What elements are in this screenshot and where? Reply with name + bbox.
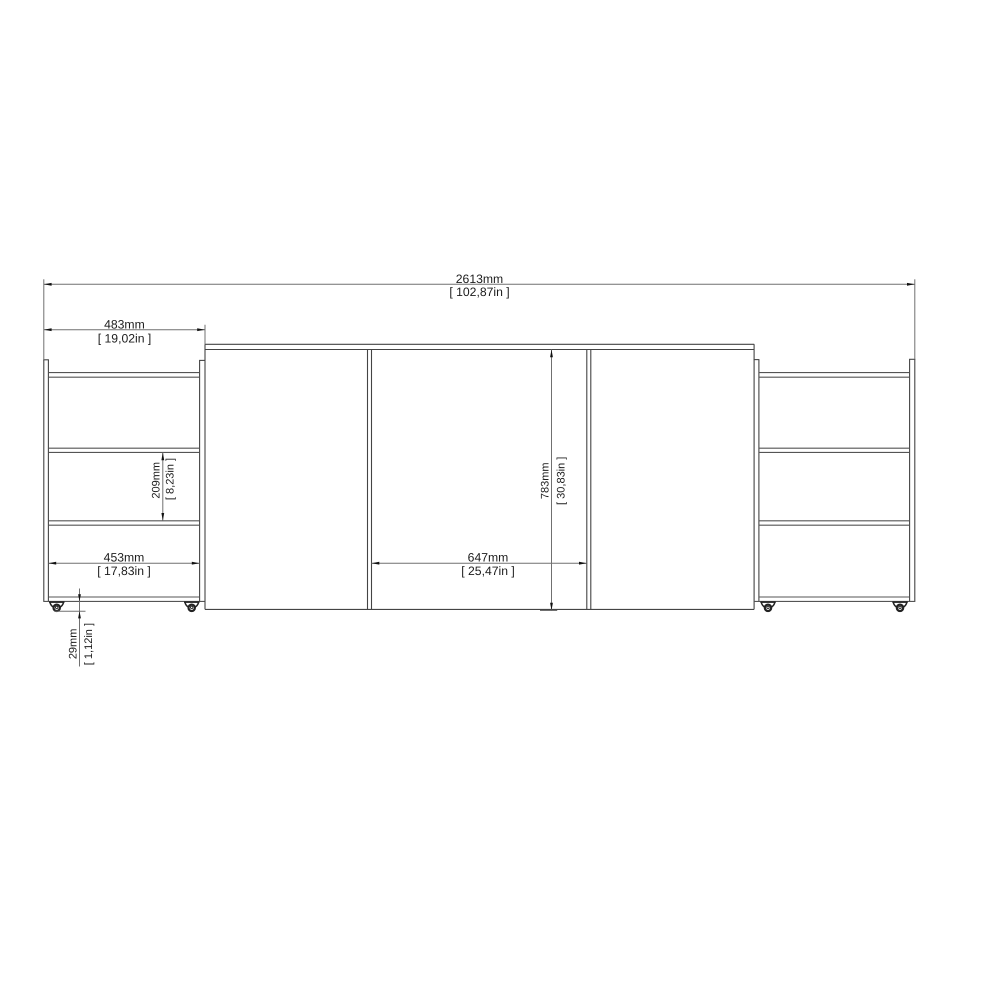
svg-text:[ 8,23in ]: [ 8,23in ] xyxy=(165,458,177,500)
svg-text:647mm: 647mm xyxy=(468,551,509,565)
svg-text:209mm: 209mm xyxy=(150,462,162,499)
svg-text:29mm: 29mm xyxy=(67,629,79,660)
svg-text:783mm: 783mm xyxy=(540,462,552,499)
svg-text:[ 1,12in ]: [ 1,12in ] xyxy=(83,623,95,665)
svg-text:[ 102,87in ]: [ 102,87in ] xyxy=(449,285,509,299)
svg-text:[ 19,02in ]: [ 19,02in ] xyxy=(98,331,152,345)
svg-text:[ 17,83in ]: [ 17,83in ] xyxy=(97,564,151,578)
svg-text:453mm: 453mm xyxy=(104,551,145,565)
svg-text:[ 25,47in ]: [ 25,47in ] xyxy=(461,564,515,578)
svg-text:2613mm: 2613mm xyxy=(456,272,503,286)
svg-text:483mm: 483mm xyxy=(104,317,145,331)
svg-text:[ 30,83in ]: [ 30,83in ] xyxy=(555,457,567,505)
